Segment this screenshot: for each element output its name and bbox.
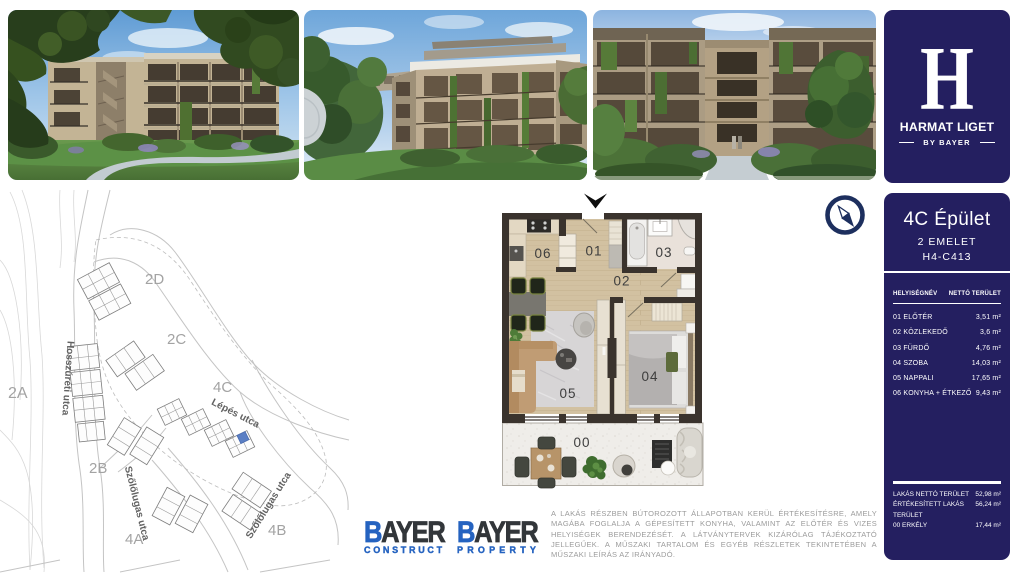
svg-text:02: 02 — [613, 274, 630, 289]
svg-text:2A: 2A — [8, 385, 28, 402]
svg-text:00: 00 — [573, 435, 590, 450]
svg-text:03: 03 — [655, 245, 672, 260]
svg-text:2B: 2B — [89, 460, 107, 477]
svg-text:01: 01 — [585, 244, 602, 259]
svg-text:05: 05 — [559, 386, 576, 401]
svg-text:06: 06 — [534, 246, 551, 261]
svg-text:4B: 4B — [268, 522, 286, 539]
svg-text:04: 04 — [641, 369, 658, 384]
svg-text:2D: 2D — [145, 271, 164, 288]
svg-text:2C: 2C — [167, 331, 186, 348]
svg-text:4C: 4C — [213, 379, 232, 396]
